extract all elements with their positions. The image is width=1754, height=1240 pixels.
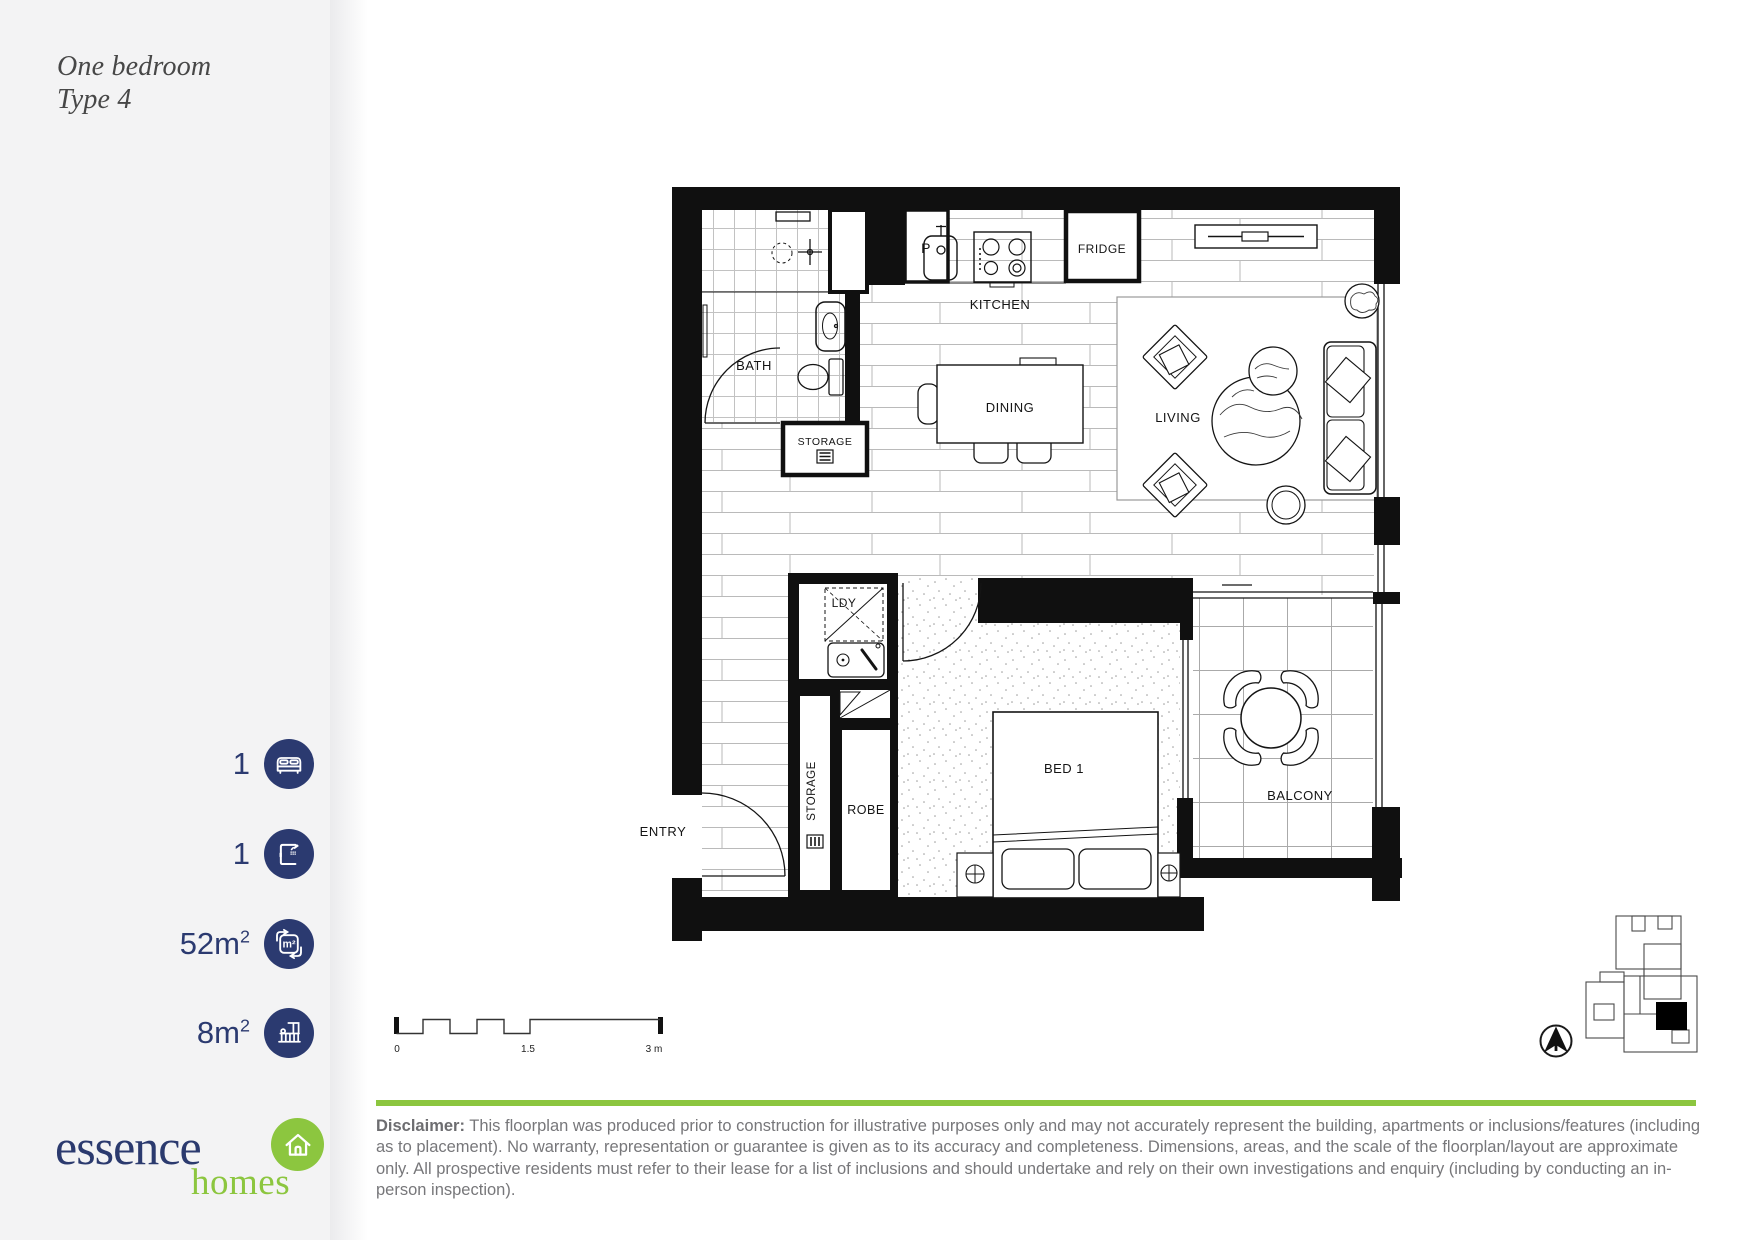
label-fridge: FRIDGE (1078, 242, 1126, 256)
disclaimer-text: Disclaimer: This floorplan was produced … (376, 1116, 1706, 1202)
stat-internal-area-value: 52m2 (180, 926, 250, 962)
shower-icon (264, 829, 314, 879)
stat-balcony-area-value: 8m2 (197, 1015, 250, 1051)
label-kitchen: KITCHEN (970, 297, 1031, 312)
scale-end: 3 m (646, 1044, 663, 1055)
label-bed1: BED 1 (1044, 761, 1084, 776)
title-line1: One bedroom (57, 50, 211, 83)
floorplan-page: One bedroom Type 4 1 1 (0, 0, 1754, 1240)
plant (1345, 284, 1379, 318)
tv-unit (1195, 225, 1317, 248)
stat-internal-area: 52m2 m² (0, 918, 314, 970)
label-laundry: LDY (832, 596, 857, 610)
scale-start: 0 (394, 1044, 400, 1055)
floorplan-drawing: BATH KITCHEN DINING LIVING FRIDGE P STOR… (672, 187, 1402, 942)
sidebar-edge-fade (330, 0, 368, 1240)
logo-essence-wordmark: essence (55, 1118, 201, 1176)
balcony-icon (264, 1008, 314, 1058)
stat-bedrooms: 1 (0, 738, 314, 790)
stat-bathrooms-value: 1 (233, 836, 250, 872)
label-living: LIVING (1155, 410, 1201, 425)
unit-location-marker (1656, 1002, 1687, 1030)
sofa (1324, 342, 1376, 494)
stat-bedrooms-value: 1 (233, 746, 250, 782)
title-line2: Type 4 (57, 83, 211, 116)
building-locator-map (1584, 914, 1699, 1057)
label-pantry: P (921, 240, 931, 256)
svg-text:m²: m² (282, 939, 295, 951)
page-title: One bedroom Type 4 (57, 50, 211, 116)
label-entry: ENTRY (627, 824, 699, 839)
scale-mid: 1.5 (521, 1044, 535, 1055)
bed-icon (264, 739, 314, 789)
disclaimer-label: Disclaimer: (376, 1117, 465, 1135)
area-icon: m² (264, 919, 314, 969)
closet-interiors (799, 584, 890, 890)
label-robe: ROBE (847, 803, 884, 817)
scale-bar: 0 1.5 3 m (390, 1014, 675, 1060)
stat-bathrooms: 1 (0, 828, 314, 880)
footer-accent-line (376, 1100, 1696, 1106)
label-dining: DINING (986, 400, 1035, 415)
label-storage-lower: STORAGE (806, 761, 818, 821)
label-bath: BATH (736, 358, 772, 373)
stat-balcony-area: 8m2 (0, 1007, 314, 1059)
label-balcony: BALCONY (1267, 788, 1333, 803)
logo-homes-wordmark: homes (191, 1161, 290, 1204)
label-storage-upper: STORAGE (798, 436, 853, 448)
north-arrow-icon (1538, 1023, 1574, 1059)
